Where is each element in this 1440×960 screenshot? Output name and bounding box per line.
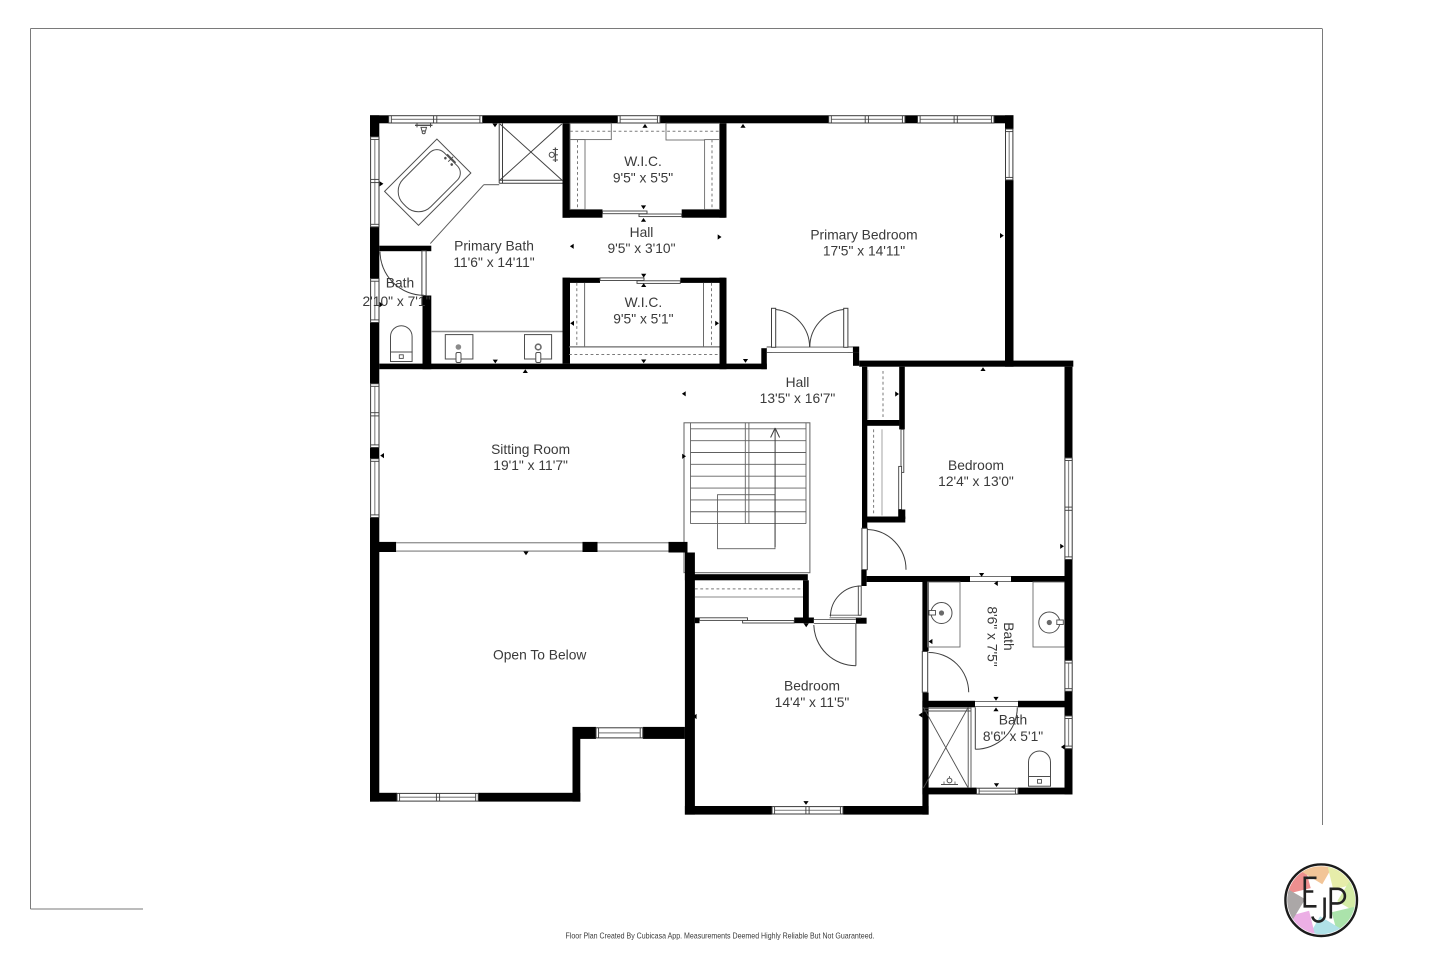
svg-text:8'6" x 7'5": 8'6" x 7'5" [985, 606, 1000, 666]
svg-text:2'10" x 7'1": 2'10" x 7'1" [363, 294, 431, 309]
svg-text:Bath: Bath [999, 713, 1027, 728]
svg-text:W.I.C.: W.I.C. [624, 154, 662, 169]
svg-text:Hall: Hall [630, 225, 654, 240]
svg-text:Primary Bedroom: Primary Bedroom [810, 227, 917, 242]
svg-text:Bedroom: Bedroom [948, 458, 1004, 473]
svg-text:Hall: Hall [786, 375, 810, 390]
svg-text:Floor Plan Created By Cubicasa: Floor Plan Created By Cubicasa App. Meas… [566, 931, 875, 941]
svg-text:Open To Below: Open To Below [493, 648, 586, 663]
svg-text:13'5" x 16'7": 13'5" x 16'7" [760, 391, 836, 406]
svg-text:Bedroom: Bedroom [784, 679, 840, 694]
svg-text:Primary Bath: Primary Bath [454, 239, 534, 254]
svg-text:W.I.C.: W.I.C. [625, 295, 663, 310]
svg-text:8'6" x 5'1": 8'6" x 5'1" [983, 729, 1043, 744]
svg-text:12'4" x 13'0": 12'4" x 13'0" [938, 474, 1014, 489]
svg-text:17'5" x 14'11": 17'5" x 14'11" [823, 244, 905, 259]
svg-text:Sitting Room: Sitting Room [491, 442, 570, 457]
svg-text:9'5" x 3'10": 9'5" x 3'10" [608, 241, 676, 256]
svg-text:11'6" x 14'11": 11'6" x 14'11" [453, 255, 534, 270]
svg-text:9'5" x 5'5": 9'5" x 5'5" [613, 170, 673, 185]
svg-text:Bath: Bath [386, 276, 414, 291]
svg-text:9'5" x 5'1": 9'5" x 5'1" [613, 311, 673, 326]
svg-text:19'1" x 11'7": 19'1" x 11'7" [493, 458, 568, 473]
svg-text:Bath: Bath [1001, 622, 1016, 650]
svg-text:14'4" x 11'5": 14'4" x 11'5" [775, 695, 850, 710]
